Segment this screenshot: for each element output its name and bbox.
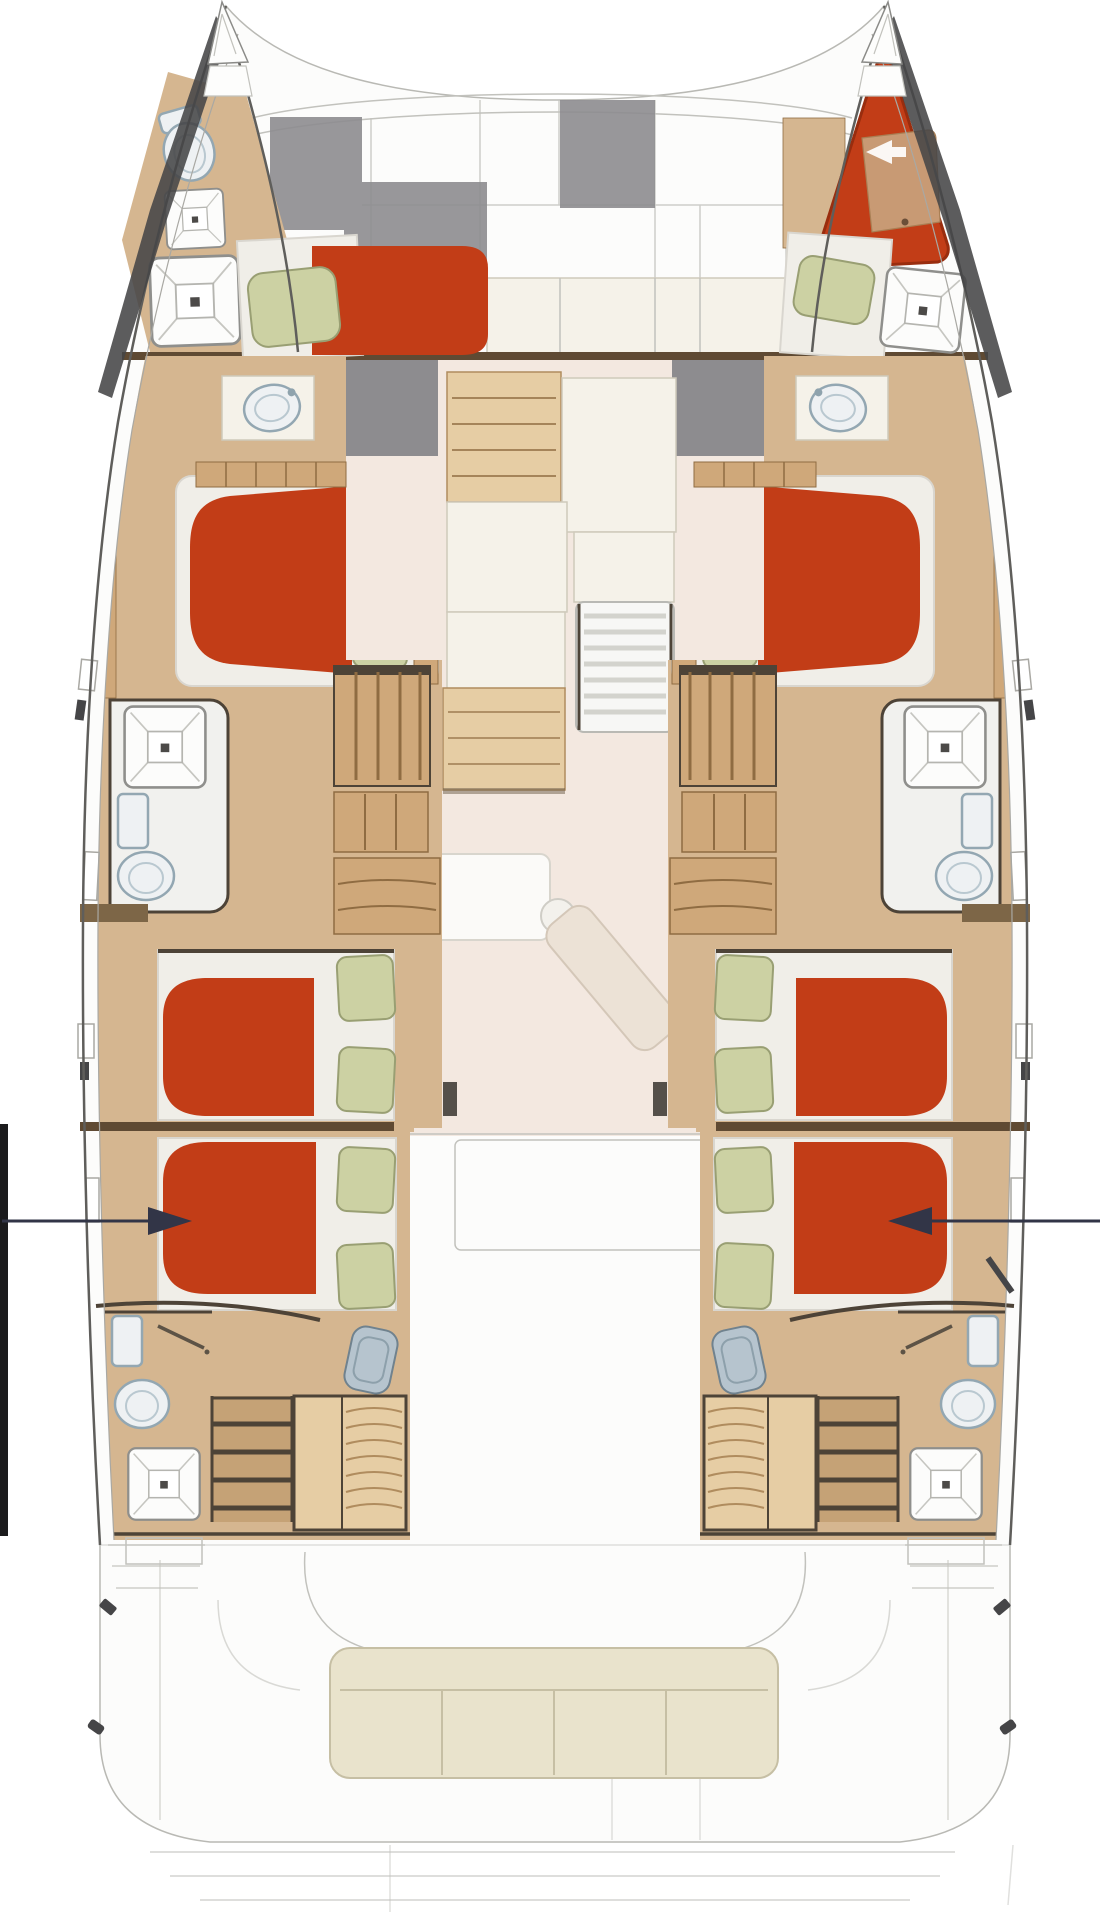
shower-cubicle	[125, 707, 206, 788]
hanging-locker	[294, 1396, 406, 1530]
toilet-cistern	[112, 1316, 142, 1366]
galley-cabinet	[447, 502, 567, 612]
galley-counter	[447, 372, 561, 502]
grey-deck-box	[560, 100, 655, 208]
forepeak-pillow	[791, 254, 876, 326]
pillow	[336, 1147, 395, 1214]
port-forepeak-berth	[237, 235, 488, 361]
galley-lower-cabinet	[447, 612, 565, 690]
berth-dot	[902, 219, 909, 226]
midship-head	[110, 700, 228, 912]
head-shelf	[80, 904, 148, 922]
starboard-entry-grey-box	[672, 360, 780, 456]
port-door-jamb	[443, 1082, 457, 1116]
pillow	[336, 1243, 395, 1310]
pillow	[336, 955, 395, 1022]
companionway-landing	[574, 532, 674, 602]
mid-aft-cabin-bed	[158, 950, 396, 1120]
forward-cabinet-band	[487, 278, 787, 354]
floor-plan-page	[0, 0, 1100, 1920]
companionway-grating	[576, 602, 674, 732]
aft-cabin-bulkhead	[80, 1122, 394, 1131]
mattress	[163, 1142, 316, 1294]
chart-cabinet	[443, 688, 565, 794]
left-edge-black-bar	[0, 1124, 8, 1536]
toilet-cistern	[118, 794, 148, 848]
aft-cabin-bed	[158, 1138, 396, 1310]
starboard-forepeak-berth	[780, 233, 892, 360]
windlass	[204, 66, 252, 96]
starboard-door-jamb	[653, 1082, 667, 1116]
hull-steps	[334, 666, 430, 786]
mattress	[190, 486, 352, 674]
mattress	[163, 978, 314, 1116]
aft-stairs	[212, 1396, 292, 1522]
galley-island	[562, 378, 676, 532]
pillow	[336, 1047, 395, 1114]
catamaran-deck-plan	[0, 0, 1100, 1920]
aft-deck-hatch	[128, 1448, 199, 1519]
drawer-units	[334, 792, 440, 934]
bow-hatch-large	[149, 255, 240, 346]
port-entry-grey-box	[330, 360, 438, 456]
